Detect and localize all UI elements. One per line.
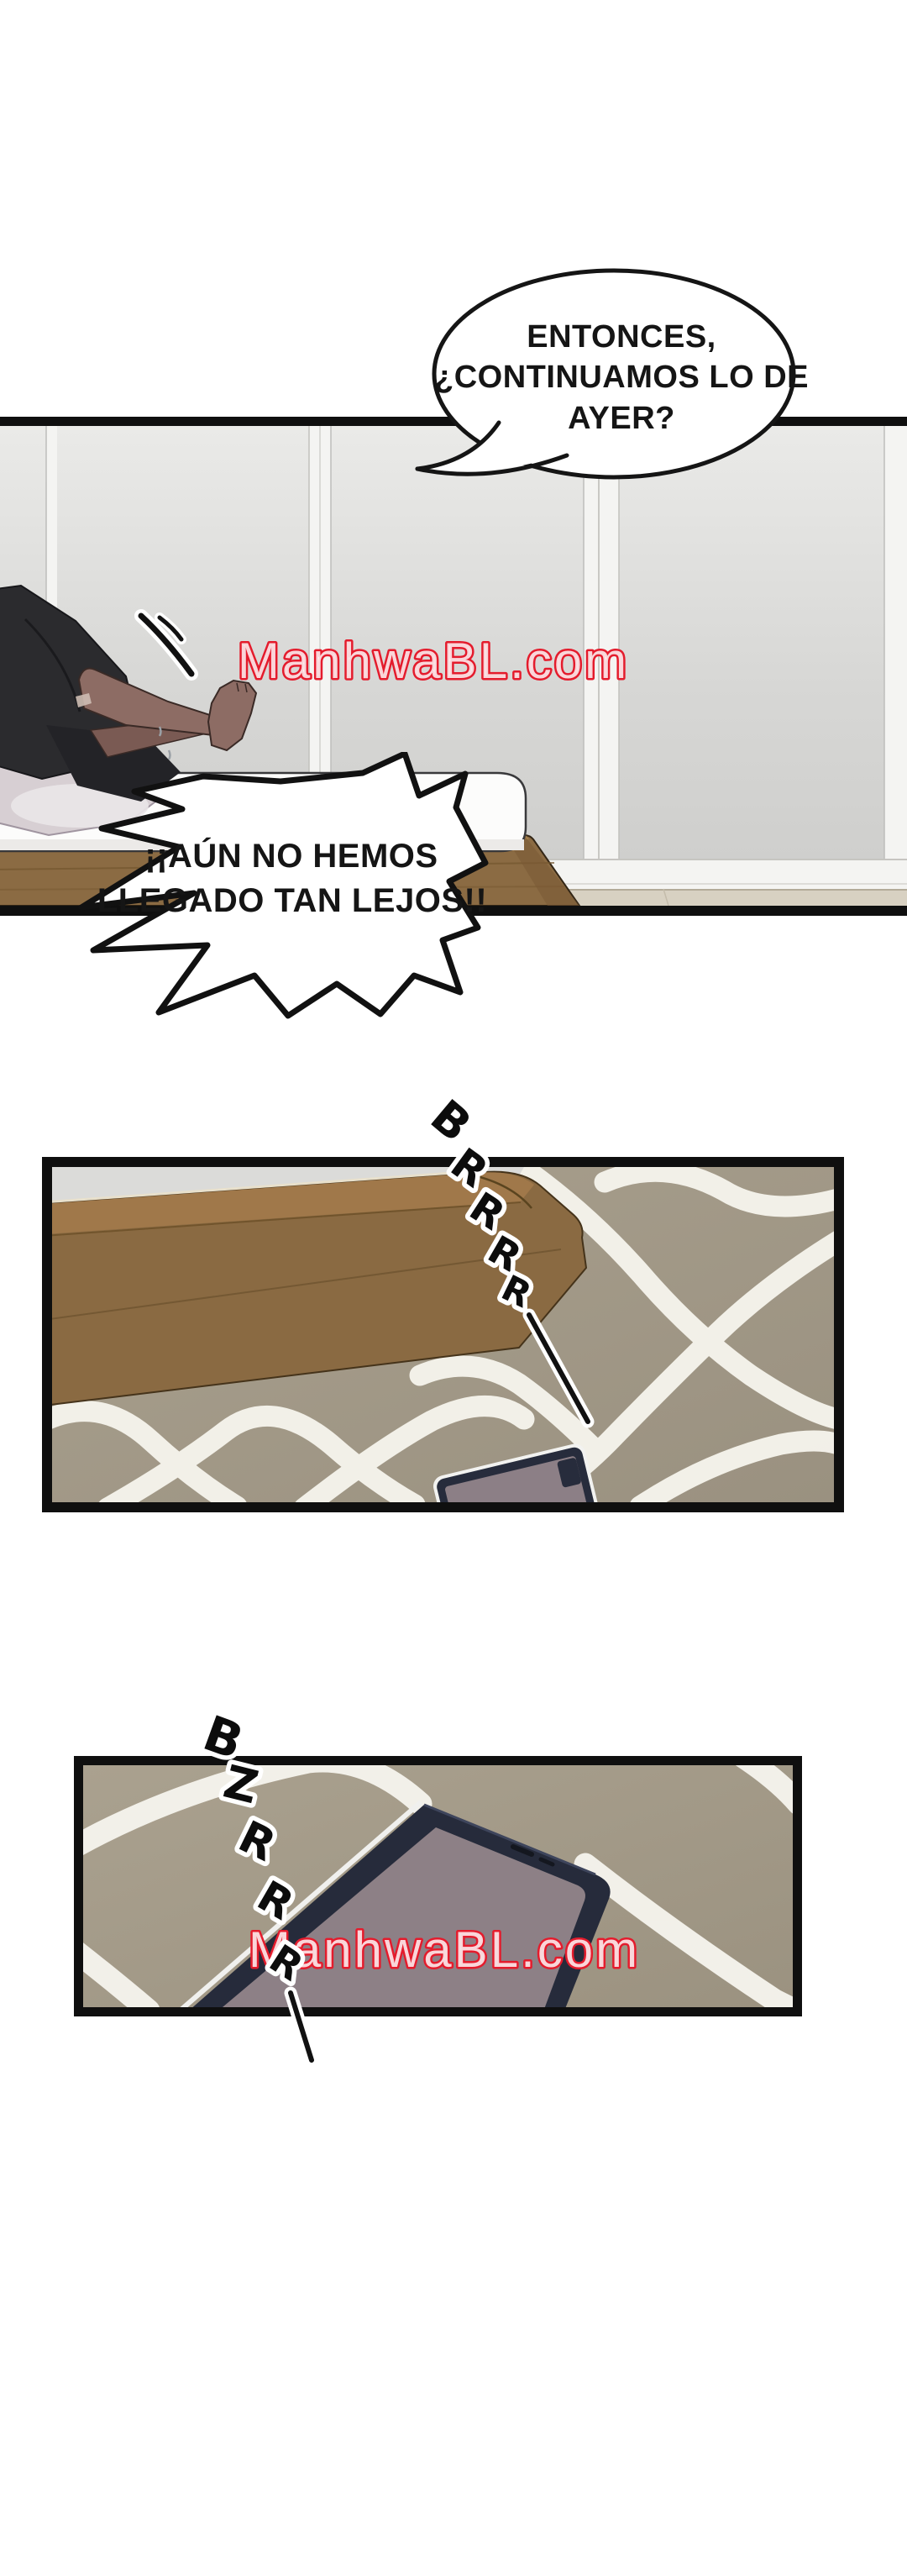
sfx-letter: R xyxy=(231,1811,283,1871)
sfx-letter: R xyxy=(261,1936,311,1990)
sfx-letter: R xyxy=(249,1871,301,1929)
speech-line-1: ENTONCES, xyxy=(527,319,716,355)
burst-bubble: ¡¡AÚN NO HEMOS LLEGADO TAN LEJOS!! xyxy=(63,752,500,1029)
speech-line-3: AYER? xyxy=(568,401,675,436)
sfx-pointer-line xyxy=(291,1993,312,2060)
comic-page: ManhwaBL.com xyxy=(0,0,907,2576)
burst-line-1: ¡¡AÚN NO HEMOS xyxy=(144,836,438,875)
speech-line-2: ¿CONTINUAMOS LO DE xyxy=(434,360,809,395)
watermark-text: ManhwaBL.com xyxy=(238,633,629,689)
sfx-pointer-line xyxy=(529,1315,588,1422)
burst-line-2: LLEGADO TAN LEJOS!! xyxy=(97,882,487,919)
speech-bubble: ENTONCES, ¿CONTINUAMOS LO DE AYER? xyxy=(395,260,823,513)
sfx-buzz-2: B Z R R R xyxy=(160,1689,361,2084)
sfx-buzz-1: B R R R R xyxy=(395,1075,613,1445)
